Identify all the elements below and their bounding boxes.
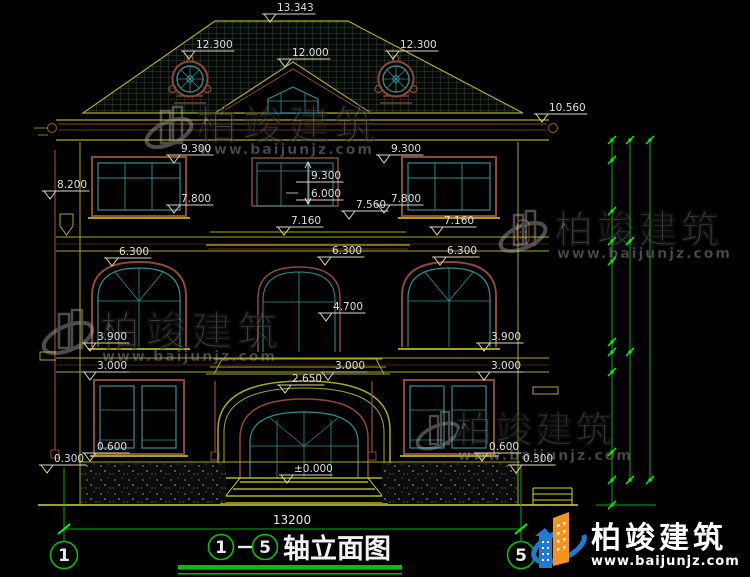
cad-elevation-screenshot: 柏竣建筑 www.baijunjz.com 柏竣建筑 www.baijunjz.… [0,0,750,577]
svg-text:9.300: 9.300 [311,170,341,182]
title-text: 轴立面图 [283,533,391,565]
svg-text:0.300: 0.300 [523,453,553,465]
dim-label: 13.343 [262,2,315,22]
svg-text:8.200: 8.200 [57,179,87,191]
svg-text:7.800: 7.800 [391,193,421,205]
drawing-title: 1 5 轴立面图 [178,533,402,575]
window-3f-left [92,157,186,216]
cornice-scroll-left [48,124,57,133]
svg-text:7.160: 7.160 [291,215,321,227]
svg-text:3.000: 3.000 [97,360,127,372]
dim-label: 8.200 [42,179,90,199]
plinth-hatch-right [382,463,518,503]
floor-3f [88,157,500,249]
watermark-url: www.baijunjz.com [199,142,374,158]
window-3f-right [402,157,496,216]
brand-logo-url: www.baijunjz.com [591,554,740,569]
dim-label: 0.600 [82,441,130,461]
balcony-3f-slab [206,232,410,249]
svg-text:9.300: 9.300 [391,143,421,155]
svg-text:3.900: 3.900 [491,331,521,343]
brand-logo: 柏竣建筑 www.baijunjz.com [529,512,740,569]
svg-text:7.800: 7.800 [181,193,211,205]
svg-text:7.160: 7.160 [444,215,474,227]
baijun-logo-icon [529,512,589,569]
svg-text:3.900: 3.900 [97,331,127,343]
title-axis-from: 1 [215,538,227,558]
porch-columns [215,381,372,452]
svg-text:6.000: 6.000 [311,188,341,200]
dim-label: 3.900 [476,331,524,351]
dim-label: 0.300 [39,453,87,473]
svg-text:6.300: 6.300 [447,245,477,257]
svg-text:3.000: 3.000 [491,360,521,372]
watermark-logo-icon [497,211,550,257]
svg-text:9.300: 9.300 [181,143,211,155]
dim-label: 6.000 [296,188,344,200]
svg-text:0.600: 0.600 [97,441,127,453]
svg-text:4.700: 4.700 [333,301,363,313]
svg-text:7.560: 7.560 [356,199,386,211]
dim-label: 2.650 [277,373,325,393]
dim-label: 9.300 [296,170,344,182]
cornice-scroll-right [549,124,558,133]
svg-text:13.343: 13.343 [277,2,314,14]
dim-label: 3.000 [476,360,524,380]
svg-text:3.000: 3.000 [335,360,365,372]
dim-label: 9.300 [376,143,424,163]
dim-label: 3.000 [82,360,130,380]
shield-ornament [60,214,73,235]
title-axis-to: 5 [259,538,271,558]
watermark-logo-icon [39,310,96,360]
dim-label: 6.300 [317,245,365,265]
plinth-hatch-left [80,463,226,503]
svg-text:12.300: 12.300 [400,39,437,51]
watermark-url: www.baijunjz.com [557,246,732,262]
watermark-mid-right: 柏竣建筑 www.baijunjz.com [497,208,732,262]
dim-label: 10.560 [534,102,587,122]
vertical-dim-3f [286,162,311,204]
svg-text:0.600: 0.600 [489,441,519,453]
watermark-url: www.baijunjz.com [102,349,277,365]
watermark-mid-left: 柏竣建筑 www.baijunjz.com [39,309,284,365]
dim-label: 3.000 [320,360,368,380]
dim-label: ±0.000 [279,463,333,483]
title-underline-thin [178,573,402,575]
svg-text:12.300: 12.300 [196,39,233,51]
watermark-brand: 柏竣建筑 [456,410,616,451]
bottom-dimension-value: 13200 [273,513,311,527]
axis-bubble-5-label: 5 [515,546,527,566]
svg-text:±0.000: ±0.000 [294,463,333,475]
dim-label: 7.560 [341,199,389,219]
window-2f-right [402,262,496,347]
entrance-steps [220,478,388,503]
svg-text:0.300: 0.300 [54,453,84,465]
axis-bubble-1-label: 1 [58,546,70,566]
brand-logo-text: 柏竣建筑 [591,521,727,556]
dim-label: 9.300 [166,143,214,163]
svg-text:2.650: 2.650 [292,373,322,385]
title-underline-thick [178,565,402,570]
roof [83,21,523,113]
svg-text:12.000: 12.000 [292,47,329,59]
svg-text:10.560: 10.560 [549,102,586,114]
side-ledge [533,387,558,394]
svg-text:6.300: 6.300 [332,245,362,257]
dim-label: 4.700 [318,301,366,321]
svg-text:6.300: 6.300 [119,246,149,258]
elevation-drawing: 柏竣建筑 www.baijunjz.com 柏竣建筑 www.baijunjz.… [0,0,750,577]
side-steps-right [533,488,572,505]
